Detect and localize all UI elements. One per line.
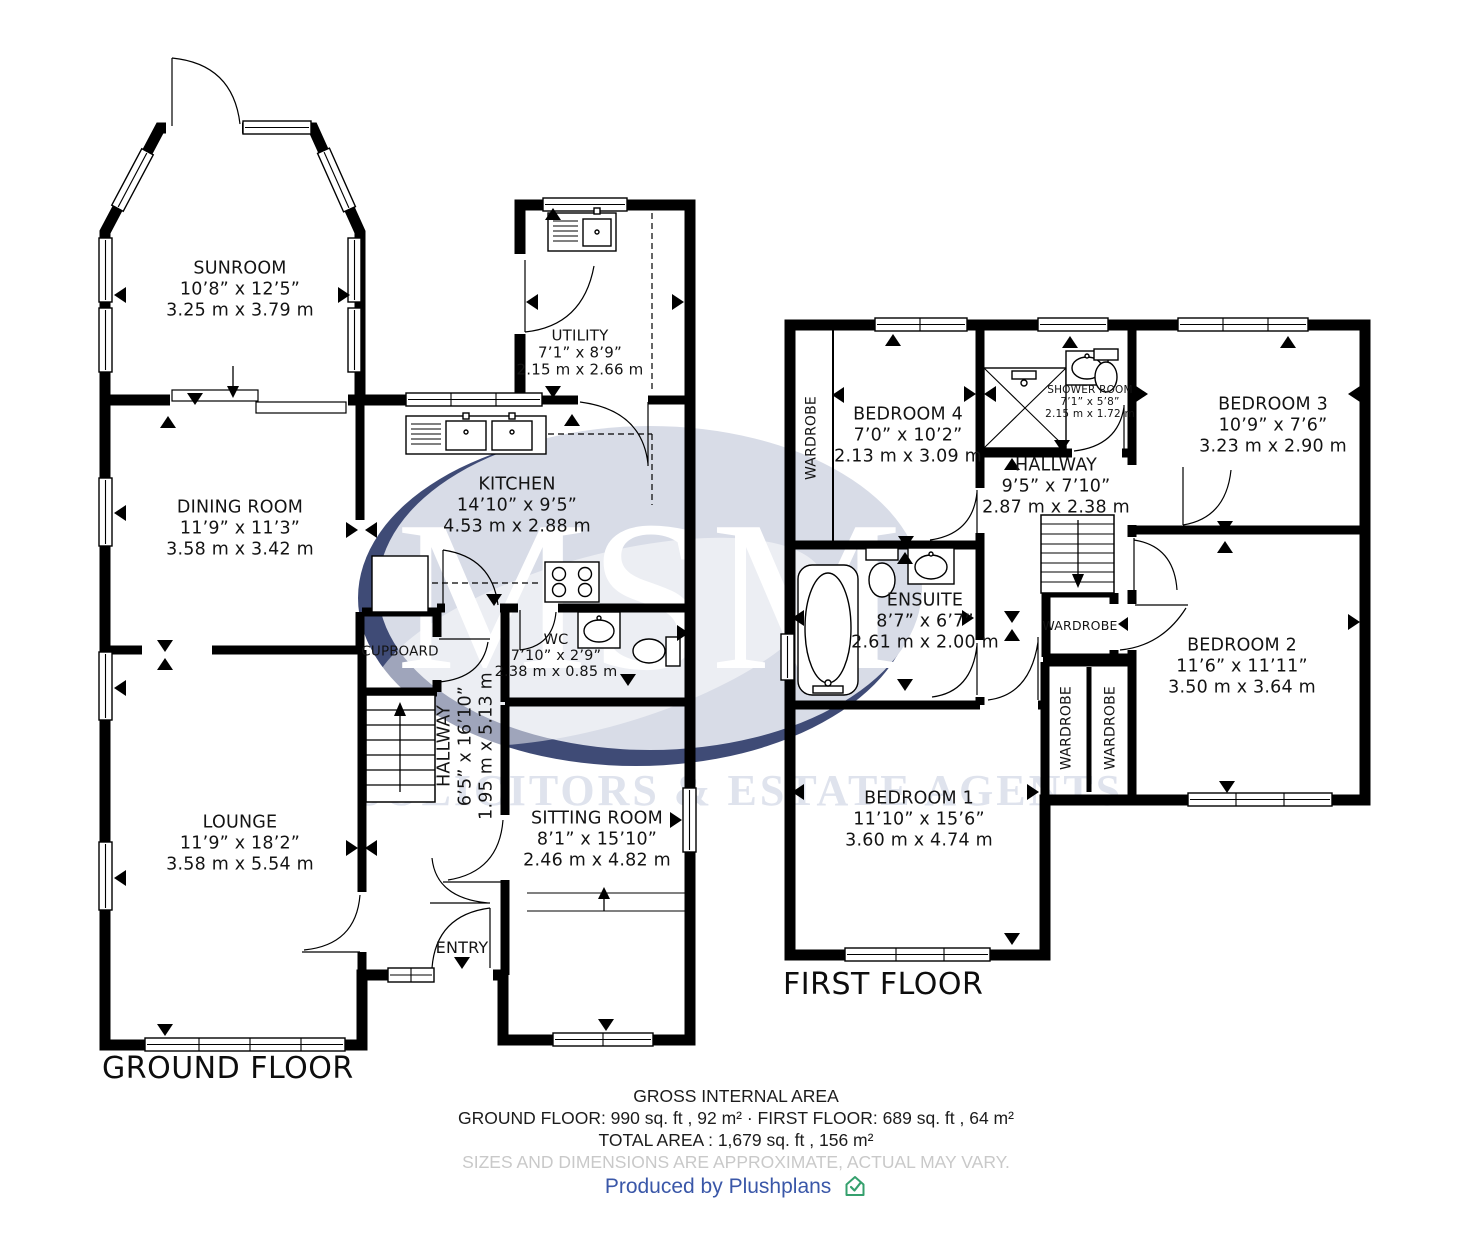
room-label-dining: DINING ROOM 11’9” x 11’3” 3.58 m x 3.42 … [166,498,314,561]
room-label-utility: UTILITY 7’1” x 8’9” 2.15 m x 2.66 m [517,328,644,379]
wardrobe-label-bedroom4: WARDROBE [805,396,820,480]
produced-by-line: Produced by Plushplans [0,1174,1472,1199]
disclaimer-text: SIZES AND DIMENSIONS ARE APPROXIMATE, AC… [0,1152,1472,1173]
room-label-bedroom4: BEDROOM 4 7’0” x 10’2” 2.13 m x 3.09 m [834,405,982,468]
floor-areas-line: GROUND FLOOR: 990 sq. ft , 92 m² · FIRST… [0,1108,1472,1129]
total-area-line: TOTAL AREA : 1,679 sq. ft , 156 m² [0,1130,1472,1151]
room-label-bedroom1: BEDROOM 1 11’10” x 15’6” 3.60 m x 4.74 m [845,789,993,852]
room-label-bedroom2: BEDROOM 2 11’6” x 11’11” 3.50 m x 3.64 m [1168,636,1316,699]
room-dims-imperial: 10’8” x 12’5” [166,280,314,301]
room-label-wc: WC 7’10” x 2’9” 2.38 m x 0.85 m [495,632,618,680]
room-label-lounge: LOUNGE 11’9” x 18’2” 3.58 m x 5.54 m [166,813,314,876]
plushplans-house-icon [843,1174,867,1198]
room-label-cupboard: CUPBOARD [361,645,438,660]
ground-floor-title: GROUND FLOOR [102,1052,354,1086]
room-label-hallway-ground: HALLWAY 6’5” x 16’10” 1.95 m x 5.13 m [435,672,498,820]
floorplan-page: MSM SOLICITORS & ESTATE AGENTS [0,0,1472,1241]
room-name: SUNROOM [166,259,314,280]
room-label-ensuite: ENSUITE 8’7” x 6’7” 2.61 m x 2.00 m [851,591,999,654]
gross-internal-area-title: GROSS INTERNAL AREA [0,1086,1472,1107]
room-dims-metric: 3.25 m x 3.79 m [166,301,314,322]
room-label-sitting: SITTING ROOM 8’1” x 15’10” 2.46 m x 4.82… [523,809,671,872]
produced-by-text: Produced by Plushplans [605,1175,831,1198]
first-floor-title: FIRST FLOOR [783,968,983,1002]
room-label-hallway-first: HALLWAY 9’5” x 7’10” 2.87 m x 2.38 m [982,456,1130,519]
room-label-sunroom: SUNROOM 10’8” x 12’5” 3.25 m x 3.79 m [166,259,314,322]
wardrobe-label-left: WARDROBE [1060,686,1075,770]
room-label-bedroom3: BEDROOM 3 10’9” x 7’6” 3.23 m x 2.90 m [1199,395,1347,458]
room-label-entry: ENTRY [436,939,489,957]
wardrobe-label-mid: WARDROBE [1042,619,1117,633]
wardrobe-label-right: WARDROBE [1104,686,1119,770]
room-label-shower: SHOWER ROOM 7’1” x 5’8” 2.15 m x 1.72 m [1045,384,1135,420]
room-label-kitchen: KITCHEN 14’10” x 9’5” 4.53 m x 2.88 m [443,475,591,538]
